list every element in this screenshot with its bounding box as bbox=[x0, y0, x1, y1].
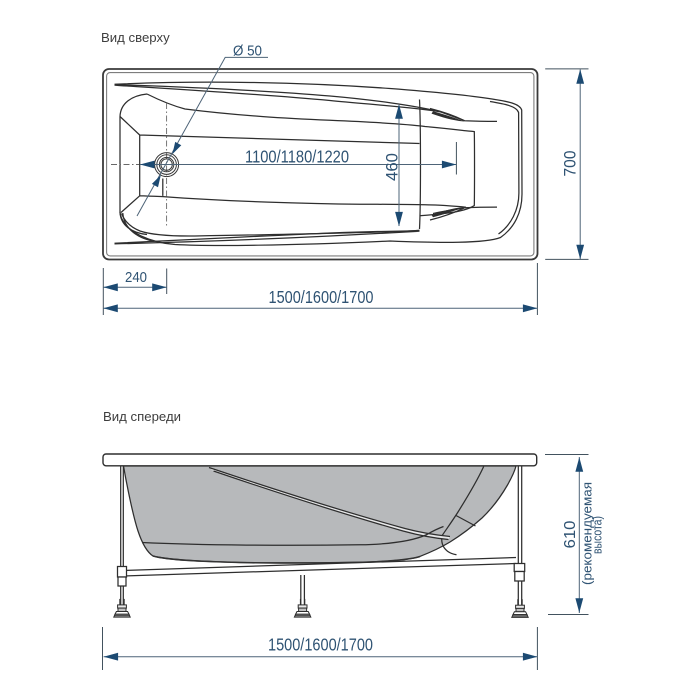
svg-text:1500/1600/1700: 1500/1600/1700 bbox=[269, 287, 374, 307]
svg-text:Вид спереди: Вид спереди bbox=[103, 409, 181, 424]
svg-text:240: 240 bbox=[125, 269, 147, 286]
svg-text:высота): высота) bbox=[591, 516, 605, 554]
svg-text:1100/1180/1220: 1100/1180/1220 bbox=[245, 147, 349, 167]
svg-text:610: 610 bbox=[562, 520, 579, 548]
svg-text:700: 700 bbox=[562, 151, 580, 177]
svg-text:Вид сверху: Вид сверху bbox=[101, 30, 170, 45]
svg-text:1500/1600/1700: 1500/1600/1700 bbox=[268, 635, 373, 655]
svg-text:Ø 50: Ø 50 bbox=[233, 43, 262, 60]
svg-text:460: 460 bbox=[384, 153, 402, 181]
